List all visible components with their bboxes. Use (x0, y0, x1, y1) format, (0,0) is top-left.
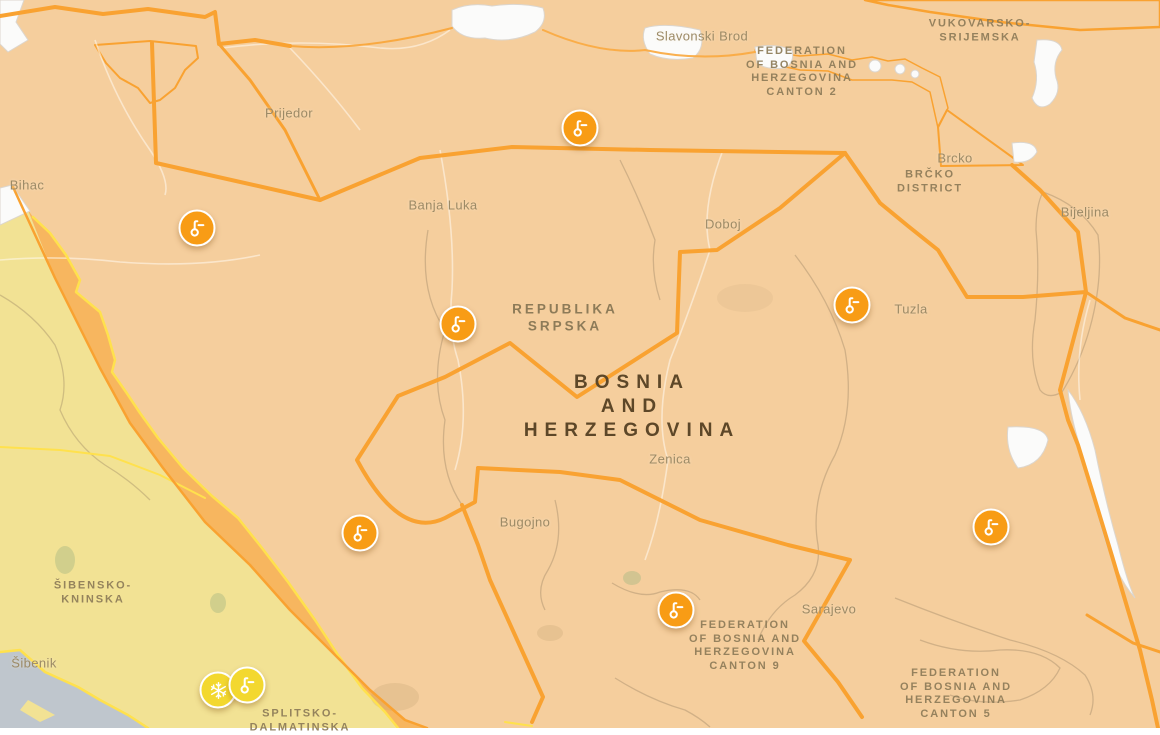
label-line: HERZEGOVINA (746, 72, 858, 86)
city-label-bihac: Bihac (10, 178, 45, 193)
label-line: SRPSKA (512, 318, 618, 335)
high-temperature-warning-icon[interactable] (562, 110, 599, 147)
thermometer-glyph (236, 674, 259, 697)
label-line: CANTON 2 (746, 86, 858, 100)
low-temperature-warning-icon[interactable] (229, 667, 266, 704)
label-layer: BOSNIAANDHERZEGOVINAREPUBLIKASRPSKASlavo… (0, 0, 1160, 728)
city-label-banja-luka: Banja Luka (408, 198, 477, 213)
city-label-prijedor: Prijedor (265, 106, 313, 121)
label-line: HERZEGOVINA (900, 694, 1012, 708)
city-label-sibenik: Šibenik (11, 656, 56, 671)
thermometer-glyph (841, 294, 864, 317)
city-label-zenica: Zenica (649, 452, 690, 467)
label-line: OF BOSNIA AND (900, 681, 1012, 695)
region-label-fbih-canton-9: FEDERATIONOF BOSNIA ANDHERZEGOVINACANTON… (689, 619, 801, 673)
label-line: FEDERATION (689, 619, 801, 633)
city-label-doboj: Doboj (705, 217, 741, 232)
label-line: HERZEGOVINA (524, 419, 740, 443)
label-line: OF BOSNIA AND (746, 59, 858, 73)
weather-warning-map[interactable]: BOSNIAANDHERZEGOVINAREPUBLIKASRPSKASlavo… (0, 0, 1160, 728)
label-line: HERZEGOVINA (689, 646, 801, 660)
label-line: OF BOSNIA AND (689, 633, 801, 647)
thermometer-glyph (569, 117, 592, 140)
label-line: CANTON 9 (689, 660, 801, 674)
label-line: SPLITSKO- (250, 708, 351, 722)
label-line: DISTRICT (897, 182, 963, 196)
label-line: SRIJEMSKA (929, 31, 1032, 45)
region-label-fbih-canton-2: FEDERATIONOF BOSNIA ANDHERZEGOVINACANTON… (746, 45, 858, 99)
region-label-sibensko-kninska: ŠIBENSKO-KNINSKA (54, 580, 132, 607)
label-line: VUKOVARSKO- (929, 18, 1032, 32)
high-temperature-warning-icon[interactable] (973, 509, 1010, 546)
label-line: FEDERATION (900, 667, 1012, 681)
snowflake-glyph (207, 679, 229, 701)
thermometer-glyph (665, 599, 688, 622)
city-label-bijeljina: Bijeljina (1061, 205, 1109, 220)
high-temperature-warning-icon[interactable] (342, 515, 379, 552)
label-line: BOSNIA (524, 371, 740, 395)
city-label-sarajevo: Sarajevo (802, 602, 857, 617)
thermometer-glyph (447, 313, 470, 336)
label-line: CANTON 5 (900, 708, 1012, 722)
region-label-brcko-district: BRČKODISTRICT (897, 169, 963, 196)
thermometer-glyph (186, 217, 209, 240)
thermometer-glyph (349, 522, 372, 545)
label-line: FEDERATION (746, 45, 858, 59)
entity-label-republika-srpska: REPUBLIKASRPSKA (512, 302, 618, 335)
label-line: BRČKO (897, 169, 963, 183)
label-line: AND (524, 395, 740, 419)
high-temperature-warning-icon[interactable] (658, 592, 695, 629)
city-label-brcko: Brcko (937, 151, 972, 166)
city-label-tuzla: Tuzla (894, 302, 927, 317)
high-temperature-warning-icon[interactable] (834, 287, 871, 324)
region-label-vukovarsko-srijemska: VUKOVARSKO-SRIJEMSKA (929, 18, 1032, 45)
high-temperature-warning-icon[interactable] (179, 210, 216, 247)
region-label-splitsko-dalmatinska: SPLITSKO-DALMATINSKA (250, 708, 351, 735)
region-label-fbih-canton-5: FEDERATIONOF BOSNIA ANDHERZEGOVINACANTON… (900, 667, 1012, 721)
label-line: REPUBLIKA (512, 302, 618, 319)
thermometer-glyph (980, 516, 1003, 539)
city-label-slavonski-brod: Slavonski Brod (656, 29, 748, 44)
city-label-bugojno: Bugojno (500, 515, 551, 530)
high-temperature-warning-icon[interactable] (440, 306, 477, 343)
country-label-bosnia-and-herzegovina: BOSNIAANDHERZEGOVINA (524, 371, 740, 443)
label-line: KNINSKA (54, 593, 132, 607)
label-line: ŠIBENSKO- (54, 580, 132, 594)
